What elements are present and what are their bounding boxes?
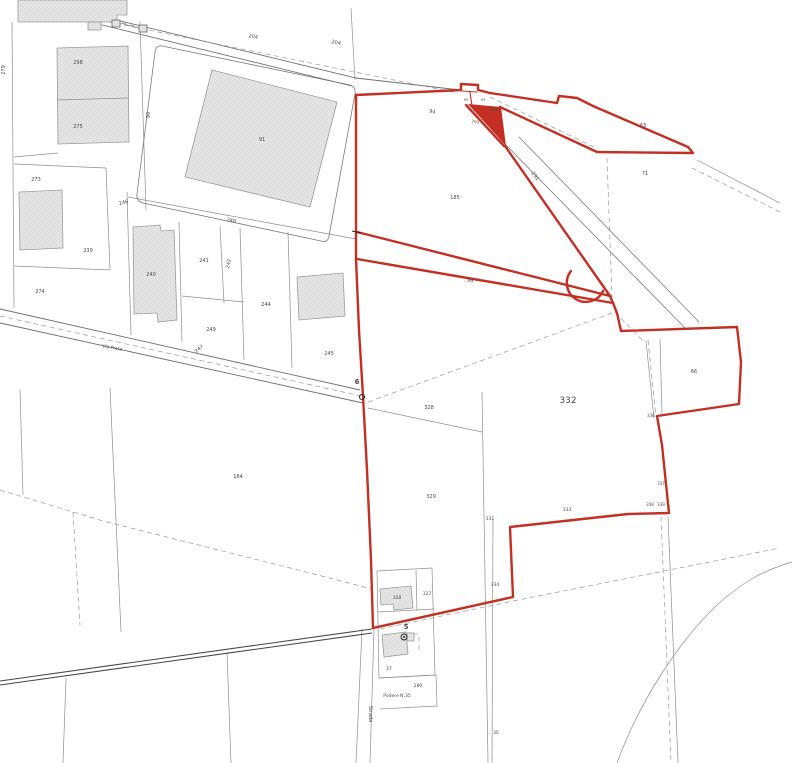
parcel-27: 27 (386, 666, 392, 672)
parcel-242: 242 (225, 258, 233, 269)
survey-point-6-label: 6 (355, 378, 360, 386)
parcel-35: 35 (493, 730, 499, 736)
parcel-184: 184 (233, 474, 243, 480)
building-top-left-annex (88, 22, 101, 30)
parcel-331: 331 (486, 516, 495, 522)
utility-box-icon (139, 25, 147, 32)
parcel-274: 274 (35, 289, 45, 295)
survey-markers (352, 231, 407, 640)
building-244 (297, 273, 345, 320)
building-91: 91 (259, 137, 265, 143)
podere-label: Podere N.35 (383, 693, 411, 699)
road-204-b: 204 (331, 39, 341, 47)
buildings (18, 0, 414, 657)
parcel-298: 298 (73, 60, 83, 66)
parcel-71: 71 (642, 171, 648, 177)
building-298-275 (57, 46, 129, 144)
parcel-279: 279 (1, 65, 7, 75)
parcel-93: 93 (481, 98, 485, 102)
utility-boxes (112, 20, 147, 32)
parcel-245: 245 (324, 351, 334, 357)
via-label: Via Prata (102, 343, 123, 352)
parcel-329: 329 (426, 494, 436, 500)
cadastral-map: 2982752792732742392462402412422482492472… (0, 0, 800, 763)
parcel-185: 185 (450, 195, 460, 201)
survey-point-5-dot (403, 636, 405, 638)
road-94: 94 (428, 108, 435, 115)
parcel-95: 95 (464, 98, 468, 102)
parcel-98: 98 (466, 277, 473, 284)
parcel-339: 339 (657, 502, 665, 507)
cadastral-map-page: 2982752792732742392462402412422482492472… (0, 0, 800, 763)
survey-point-5-label: 5 (404, 623, 409, 631)
parcel-290: 290 (471, 118, 480, 125)
parcel-337: 337 (657, 481, 665, 486)
parcel-336: 336 (647, 413, 655, 418)
parcel-209: 209 (490, 107, 498, 112)
strada-label: Strada (367, 706, 373, 723)
parcel-240: 240 (146, 272, 156, 278)
parcel-244: 244 (261, 302, 271, 308)
red-boundary (356, 84, 741, 628)
building-273 (19, 190, 63, 250)
utility-box-icon (112, 20, 120, 27)
parcel-280: 280 (414, 683, 423, 689)
parcel-241: 241 (199, 258, 209, 264)
parcel-63: 63 (640, 123, 646, 129)
parcel-328: 328 (424, 405, 434, 411)
parcel-248: 248 (226, 217, 237, 225)
parcel-66: 66 (691, 369, 697, 375)
parcel-247: 247 (194, 344, 205, 355)
railway-line (0, 629, 372, 685)
parcel-275: 275 (73, 124, 83, 130)
parcel-327: 327 (423, 591, 432, 597)
building-328: 328 (393, 595, 402, 601)
farm-annex (407, 633, 414, 641)
farm-building (382, 632, 408, 657)
parcel-334: 334 (491, 582, 500, 588)
parcel-332: 332 (559, 396, 576, 406)
parcel-273: 273 (31, 177, 41, 183)
building-top-left (18, 0, 127, 22)
road-291: 291 (530, 171, 540, 182)
parcel-249: 249 (206, 327, 216, 333)
parcel-239: 239 (83, 248, 93, 254)
parcel-90: 90 (146, 112, 152, 118)
parcel-333: 333 (563, 507, 572, 513)
parcel-338: 338 (646, 502, 654, 507)
road-204-a: 204 (248, 33, 258, 41)
